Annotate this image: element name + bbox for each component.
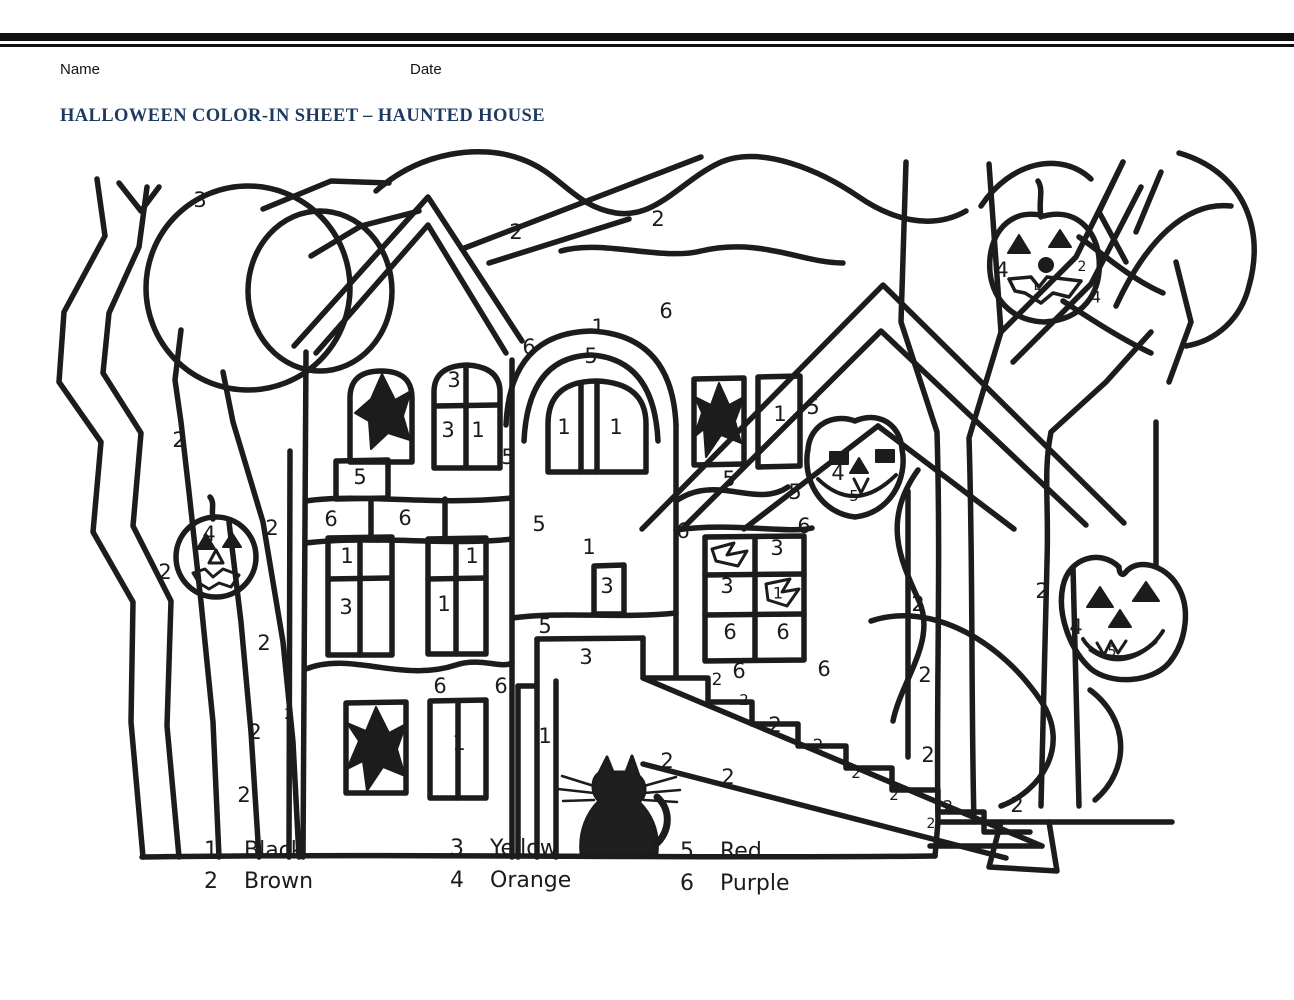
region-number: 5 [849, 487, 859, 505]
pumpkin-nose [850, 458, 868, 473]
legend-item-brown: 2Brown [204, 869, 313, 894]
region-number: 1 [582, 535, 595, 559]
worksheet-page: Name Date HALLOWEEN COLOR-IN SHEET – HAU… [0, 0, 1294, 1000]
legend-color-name: Red [720, 839, 762, 864]
region-number: 4 [202, 522, 215, 546]
region-number: 5 [1033, 282, 1043, 300]
region-number: 1 [471, 418, 484, 442]
region-number: 6 [659, 299, 672, 323]
legend-item-purple: 6Purple [680, 871, 789, 896]
region-number: 1 [609, 415, 622, 439]
region-number: 6 [797, 514, 810, 538]
region-number: 1 [465, 544, 478, 568]
region-number: 6 [676, 519, 689, 543]
pumpkin-nose [1109, 610, 1131, 627]
region-number: 1 [538, 724, 551, 748]
legend-color-name: Orange [490, 868, 571, 893]
region-number: 3 [720, 574, 733, 598]
region-number: 3 [193, 188, 206, 212]
region-number: 2 [943, 797, 953, 816]
region-number: 2 [721, 765, 734, 789]
house-center-tower [506, 331, 676, 857]
region-number: 2 [813, 736, 824, 756]
region-number: 5 [722, 467, 735, 491]
star-silhouette [694, 383, 744, 457]
region-number: 6 [522, 335, 535, 359]
legend-color-name: Black [244, 838, 304, 863]
region-number: 6 [494, 674, 507, 698]
region-number: 2 [889, 786, 899, 804]
region-number: 6 [776, 620, 789, 644]
right-tree [871, 162, 1191, 871]
region-number: 1 [773, 584, 783, 603]
bat-silhouette [355, 374, 411, 449]
region-number: 2 [851, 764, 861, 782]
moon [146, 186, 392, 390]
region-number: 6 [817, 657, 830, 681]
legend-item-orange: 4Orange [450, 868, 571, 893]
legend-item-black: 1Black [204, 838, 304, 863]
pumpkin-eye [1133, 582, 1159, 601]
region-number: 4 [1091, 288, 1101, 307]
region-number: 6 [433, 674, 446, 698]
region-number: 1 [452, 731, 465, 755]
region-number: 3 [770, 536, 783, 560]
region-number: 1 [437, 592, 450, 616]
legend-number: 4 [450, 868, 490, 893]
region-number: 5 [353, 465, 366, 489]
legend-color-name: Brown [244, 869, 313, 894]
legend-color-name: Purple [720, 871, 789, 896]
pumpkin-left [176, 497, 256, 597]
region-number: 5 [584, 344, 597, 368]
region-number: 1 [557, 415, 570, 439]
region-number: 2 [911, 592, 924, 616]
region-number: 2 [651, 207, 664, 231]
haunted-house-drawing: 3222422222233155661311661615115135316515… [0, 0, 1294, 1000]
region-number: 2 [1078, 259, 1087, 275]
region-number: 2 [1010, 793, 1023, 817]
region-number: 2 [237, 783, 250, 807]
pumpkin-eye [876, 450, 894, 462]
region-number: 2 [660, 749, 673, 773]
region-number: 2 [257, 631, 270, 655]
region-number: 1 [340, 544, 353, 568]
region-number: 3 [441, 418, 454, 442]
region-number: 2 [158, 560, 171, 584]
legend-number: 6 [680, 871, 720, 896]
legend-number: 5 [680, 839, 720, 864]
stairs [643, 678, 1042, 858]
region-number: 3 [600, 574, 613, 598]
region-number: 6 [723, 620, 736, 644]
legend-number: 1 [204, 838, 244, 863]
region-number: 2 [927, 816, 936, 832]
region-number: 2 [248, 720, 261, 744]
pumpkin-eye [1008, 235, 1030, 253]
region-number: 2 [768, 713, 781, 737]
region-number: 5 [532, 512, 545, 536]
region-number: 3 [579, 645, 592, 669]
region-number: 4 [995, 258, 1008, 282]
legend-color-name: Yellow [490, 836, 558, 861]
region-number: 4 [1069, 615, 1082, 639]
region-number: 4 [831, 461, 844, 485]
region-number: 1 [591, 315, 604, 339]
region-number: 5 [806, 395, 819, 419]
region-number: 2 [712, 670, 723, 690]
region-number: 1 [773, 402, 786, 426]
region-number: 5 [538, 614, 551, 638]
region-number: 3 [339, 595, 352, 619]
region-number: 2 [1035, 579, 1048, 603]
region-number: 5 [501, 445, 514, 469]
region-number: 2 [739, 691, 749, 709]
pumpkin-eye [1049, 230, 1071, 247]
star-silhouette [347, 707, 406, 791]
region-number: 2 [284, 705, 294, 723]
lightning-bolt [712, 543, 747, 566]
region-number: 3 [447, 368, 460, 392]
pumpkin-eye [1087, 587, 1113, 607]
legend-number: 2 [204, 869, 244, 894]
region-number: 2 [265, 516, 278, 540]
region-number: 2 [918, 663, 931, 687]
region-number: 6 [324, 507, 337, 531]
pumpkin-nose [1038, 257, 1054, 273]
pumpkin-eye [223, 533, 241, 547]
legend-number: 3 [450, 836, 490, 861]
region-number: 6 [732, 659, 745, 683]
region-number: 2 [921, 743, 934, 767]
region-number: 5 [788, 480, 801, 504]
region-number: 5 [1108, 644, 1117, 660]
legend-item-red: 5Red [680, 839, 762, 864]
region-number: 6 [398, 506, 411, 530]
pumpkin-nose [209, 550, 223, 563]
legend-item-yellow: 3Yellow [450, 836, 558, 861]
region-number: 2 [172, 428, 185, 452]
region-number: 2 [509, 220, 522, 244]
